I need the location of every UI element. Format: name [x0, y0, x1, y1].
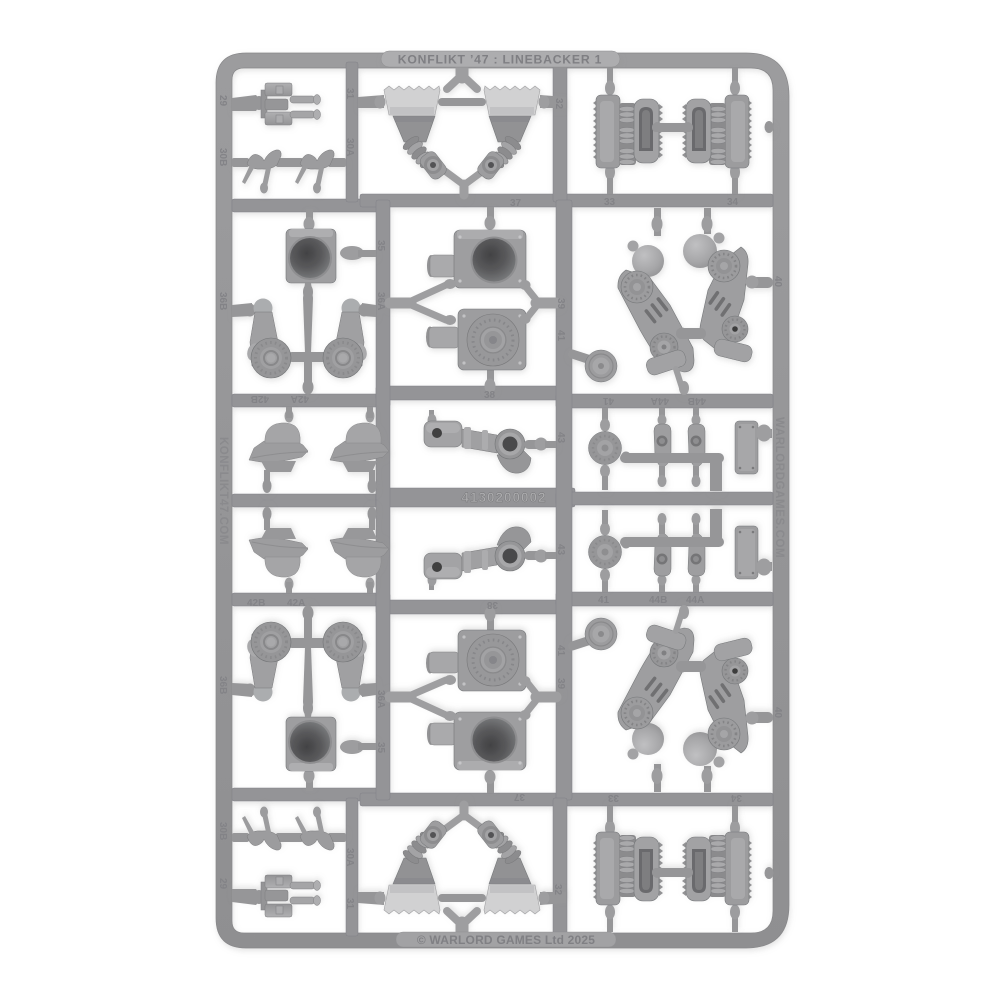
svg-text:43: 43	[555, 432, 566, 444]
svg-text:33: 33	[607, 792, 619, 803]
svg-text:40: 40	[772, 707, 783, 719]
svg-text:42B: 42B	[251, 393, 269, 404]
svg-text:4130200002: 4130200002	[461, 490, 546, 505]
svg-text:42B: 42B	[247, 598, 265, 609]
svg-text:KONFLIKT47.COM: KONFLIKT47.COM	[217, 437, 229, 545]
svg-text:44B: 44B	[688, 395, 706, 406]
svg-text:30B: 30B	[217, 822, 228, 840]
svg-text:36B: 36B	[217, 676, 228, 694]
svg-text:39: 39	[555, 678, 566, 690]
svg-text:32: 32	[553, 98, 564, 110]
svg-text:37: 37	[513, 791, 525, 802]
svg-text:30A: 30A	[344, 848, 355, 866]
svg-text:38: 38	[484, 390, 496, 401]
svg-text:41: 41	[598, 595, 610, 606]
svg-text:33: 33	[604, 197, 616, 208]
svg-text:34: 34	[727, 197, 739, 208]
svg-text:WARLORDGAMES.COM: WARLORDGAMES.COM	[773, 417, 785, 558]
svg-text:35: 35	[375, 240, 386, 252]
svg-text:38: 38	[486, 599, 498, 610]
svg-text:36A: 36A	[375, 292, 386, 310]
svg-text:32: 32	[552, 884, 563, 896]
svg-text:44A: 44A	[686, 595, 704, 606]
svg-text:35: 35	[375, 742, 386, 754]
svg-text:42A: 42A	[291, 393, 309, 404]
svg-text:36B: 36B	[217, 292, 228, 310]
svg-text:30A: 30A	[344, 138, 355, 156]
svg-text:29: 29	[217, 95, 228, 107]
svg-text:43: 43	[555, 544, 566, 556]
svg-text:41: 41	[602, 395, 614, 406]
svg-text:39: 39	[555, 298, 566, 310]
svg-text:41: 41	[555, 330, 566, 342]
svg-text:37: 37	[510, 198, 522, 209]
svg-text:30B: 30B	[217, 148, 228, 166]
svg-text:KONFLIKT ’47 : LINEBACKER 1: KONFLIKT ’47 : LINEBACKER 1	[398, 53, 602, 67]
svg-text:36A: 36A	[375, 690, 386, 708]
svg-text:31: 31	[344, 88, 355, 100]
svg-text:© WARLORD GAMES Ltd 2025: © WARLORD GAMES Ltd 2025	[417, 933, 595, 947]
svg-text:31: 31	[344, 898, 355, 910]
svg-text:44A: 44A	[651, 395, 669, 406]
svg-text:40: 40	[772, 276, 783, 288]
svg-text:34: 34	[730, 792, 742, 803]
svg-text:44B: 44B	[649, 595, 667, 606]
svg-text:42A: 42A	[287, 598, 305, 609]
svg-text:29: 29	[217, 878, 228, 890]
svg-text:41: 41	[555, 645, 566, 657]
